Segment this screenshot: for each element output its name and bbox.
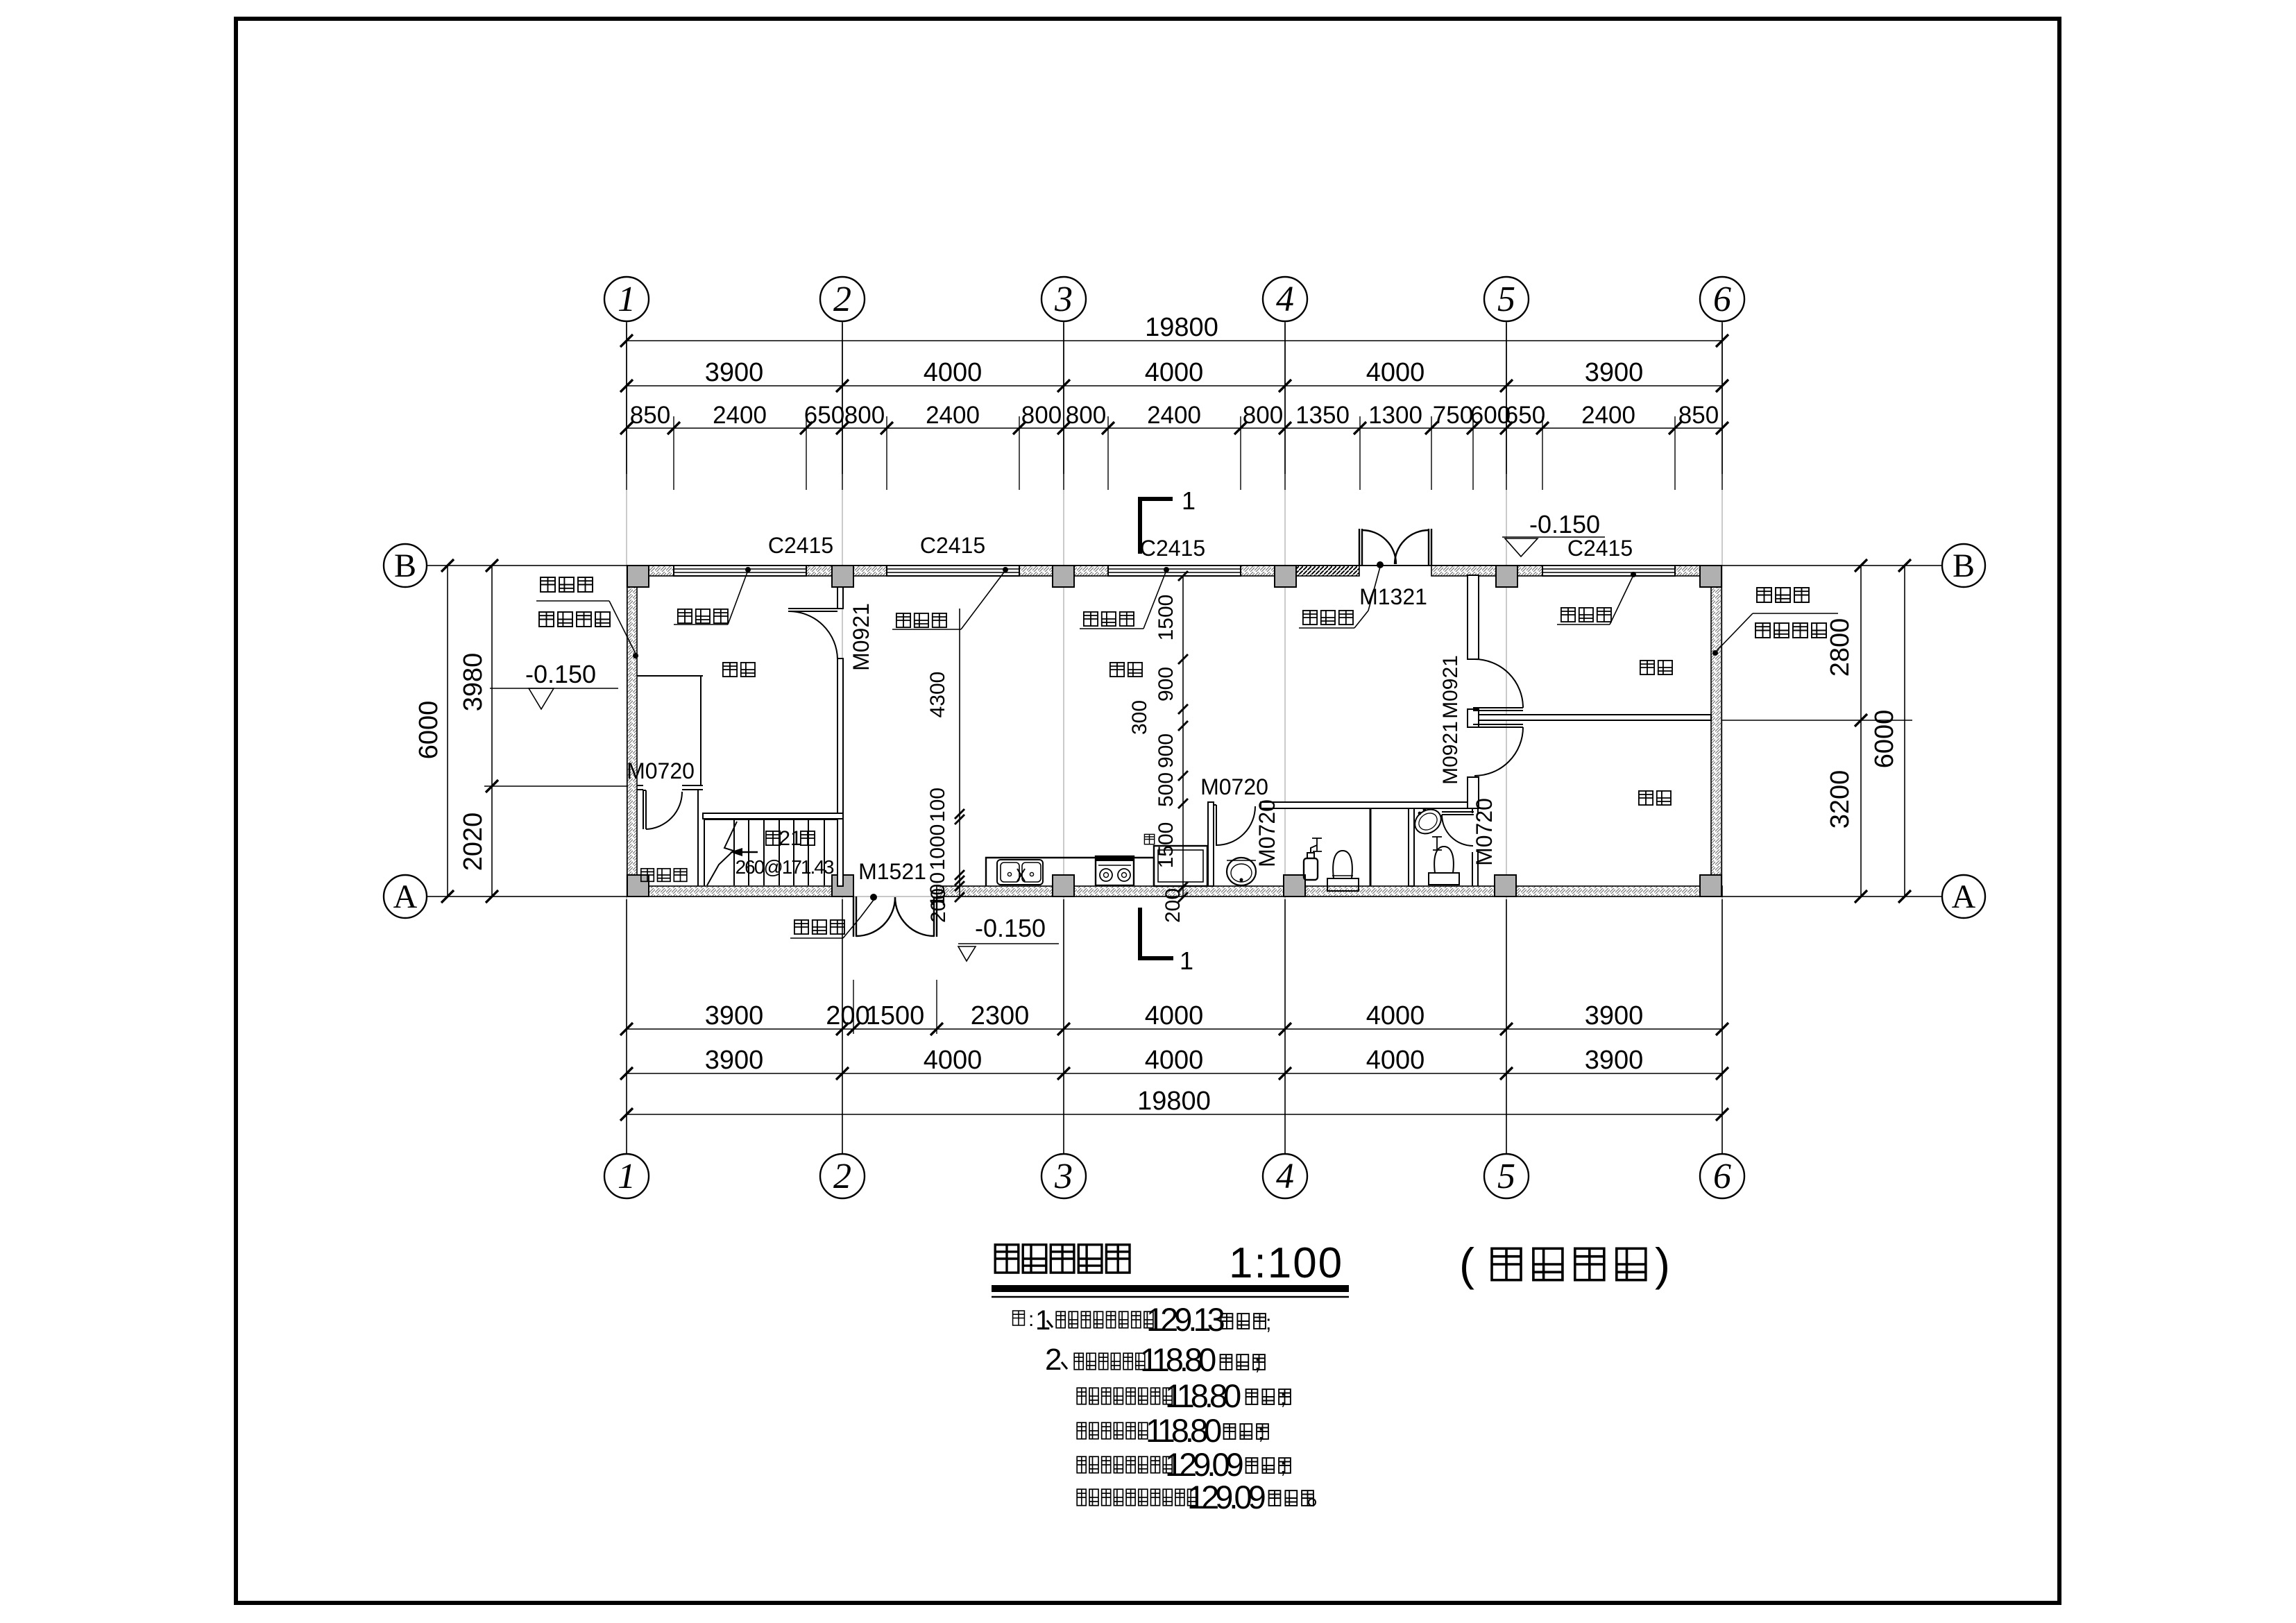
svg-text:4000: 4000 <box>1145 1046 1204 1075</box>
svg-text:1500: 1500 <box>1155 595 1177 641</box>
svg-text:800: 800 <box>1021 402 1062 429</box>
svg-text:900: 900 <box>1155 667 1177 702</box>
svg-text:2: 2 <box>1045 1343 1062 1377</box>
svg-text:21: 21 <box>779 827 801 850</box>
svg-text:4000: 4000 <box>1366 1046 1425 1075</box>
svg-text:2800: 2800 <box>1826 618 1855 677</box>
svg-text:3900: 3900 <box>1585 358 1644 387</box>
svg-text:3900: 3900 <box>705 1046 764 1075</box>
svg-text:3980: 3980 <box>459 653 488 712</box>
svg-text:200: 200 <box>927 888 950 923</box>
svg-text:850: 850 <box>630 402 670 429</box>
svg-text:19800: 19800 <box>1145 313 1218 342</box>
svg-text:(: ( <box>1459 1239 1474 1290</box>
svg-text:;: ; <box>1280 1455 1286 1478</box>
svg-text::: : <box>1028 1308 1034 1331</box>
svg-text:118.80: 118.80 <box>1146 1412 1221 1449</box>
svg-text:M0720: M0720 <box>627 758 695 783</box>
svg-text:1:100: 1:100 <box>1229 1239 1343 1287</box>
svg-text:800: 800 <box>1243 402 1283 429</box>
svg-text:1300: 1300 <box>1368 402 1422 429</box>
svg-text:1500: 1500 <box>1155 822 1177 869</box>
svg-text:800: 800 <box>1066 402 1106 429</box>
svg-text:2400: 2400 <box>713 402 767 429</box>
svg-text:1: 1 <box>618 280 636 319</box>
svg-text:4000: 4000 <box>1145 1001 1204 1030</box>
svg-text:4000: 4000 <box>924 358 983 387</box>
svg-text:300: 300 <box>1128 700 1151 735</box>
svg-text:4: 4 <box>1276 1157 1294 1196</box>
svg-text:6000: 6000 <box>414 701 443 760</box>
svg-text:6: 6 <box>1713 1157 1731 1196</box>
svg-text:4: 4 <box>1276 280 1294 319</box>
svg-text:2400: 2400 <box>926 402 980 429</box>
svg-text:19800: 19800 <box>1137 1087 1211 1116</box>
svg-text:4000: 4000 <box>1366 358 1425 387</box>
svg-text:;: ; <box>1266 1311 1271 1334</box>
svg-text:A: A <box>393 878 418 915</box>
svg-text:118.80: 118.80 <box>1165 1377 1241 1414</box>
svg-text:6: 6 <box>1713 280 1731 319</box>
svg-text:M0720: M0720 <box>1472 798 1497 866</box>
svg-text:1: 1 <box>1180 946 1193 975</box>
svg-text:3900: 3900 <box>1585 1046 1644 1075</box>
svg-text:C2415: C2415 <box>1140 536 1205 561</box>
svg-text:4000: 4000 <box>924 1046 983 1075</box>
svg-text:200: 200 <box>826 1001 869 1030</box>
svg-text:2400: 2400 <box>1581 402 1635 429</box>
svg-text:6000: 6000 <box>1870 710 1899 769</box>
svg-text:129.09: 129.09 <box>1165 1446 1243 1483</box>
svg-text:C2415: C2415 <box>1567 536 1633 561</box>
svg-text:1000: 1000 <box>926 824 949 871</box>
svg-text:B: B <box>1953 547 1975 584</box>
svg-text:M0921: M0921 <box>1439 655 1462 719</box>
svg-text:750: 750 <box>1433 402 1473 429</box>
svg-text:;: ; <box>1255 1352 1260 1375</box>
svg-text:;: ; <box>1258 1421 1264 1444</box>
svg-text:C2415: C2415 <box>920 533 985 558</box>
svg-text:3900: 3900 <box>1585 1001 1644 1030</box>
svg-text:2020: 2020 <box>459 813 488 872</box>
svg-text:129.09: 129.09 <box>1187 1479 1265 1515</box>
svg-text:A: A <box>1952 878 1976 915</box>
svg-text:M0921: M0921 <box>849 603 874 671</box>
svg-text:2400: 2400 <box>1147 402 1201 429</box>
svg-text:1500: 1500 <box>866 1001 925 1030</box>
svg-text:2300: 2300 <box>971 1001 1030 1030</box>
svg-text:900: 900 <box>1155 733 1177 768</box>
svg-text:M1521: M1521 <box>858 859 926 884</box>
svg-text:850: 850 <box>1678 402 1719 429</box>
svg-text:5: 5 <box>1497 280 1515 319</box>
svg-text:3: 3 <box>1054 280 1073 319</box>
svg-text:2: 2 <box>833 280 851 319</box>
svg-text:118.80: 118.80 <box>1140 1341 1216 1378</box>
svg-text:-0.150: -0.150 <box>975 914 1046 942</box>
svg-text:3900: 3900 <box>705 1001 764 1030</box>
svg-text:1: 1 <box>1182 486 1196 515</box>
svg-text:4300: 4300 <box>926 672 949 718</box>
svg-text:M0720: M0720 <box>1255 799 1279 867</box>
svg-text:200: 200 <box>1162 888 1184 923</box>
svg-text:3900: 3900 <box>705 358 764 387</box>
svg-text:129.13: 129.13 <box>1146 1301 1225 1338</box>
svg-text:M0921: M0921 <box>1439 721 1462 785</box>
svg-text:3: 3 <box>1054 1157 1073 1196</box>
svg-text:5: 5 <box>1497 1157 1515 1196</box>
svg-text:3200: 3200 <box>1826 770 1855 829</box>
svg-text:): ) <box>1655 1239 1670 1290</box>
svg-text:4000: 4000 <box>1145 358 1204 387</box>
svg-text:260@171.43: 260@171.43 <box>735 856 834 878</box>
svg-text:1350: 1350 <box>1295 402 1350 429</box>
svg-text:650: 650 <box>1505 402 1545 429</box>
svg-text:500: 500 <box>1155 772 1177 807</box>
svg-text:650: 650 <box>804 402 844 429</box>
svg-text:100: 100 <box>926 788 949 822</box>
svg-text:C2415: C2415 <box>768 533 833 558</box>
svg-text:800: 800 <box>844 402 885 429</box>
svg-text:-0.150: -0.150 <box>525 660 596 688</box>
svg-text:-0.150: -0.150 <box>1529 510 1600 538</box>
svg-text:2: 2 <box>833 1157 851 1196</box>
svg-text:4000: 4000 <box>1366 1001 1425 1030</box>
svg-text:1: 1 <box>618 1157 636 1196</box>
svg-text:M0720: M0720 <box>1200 774 1268 799</box>
svg-text:;: ; <box>1280 1386 1286 1409</box>
svg-text:B: B <box>394 547 416 584</box>
